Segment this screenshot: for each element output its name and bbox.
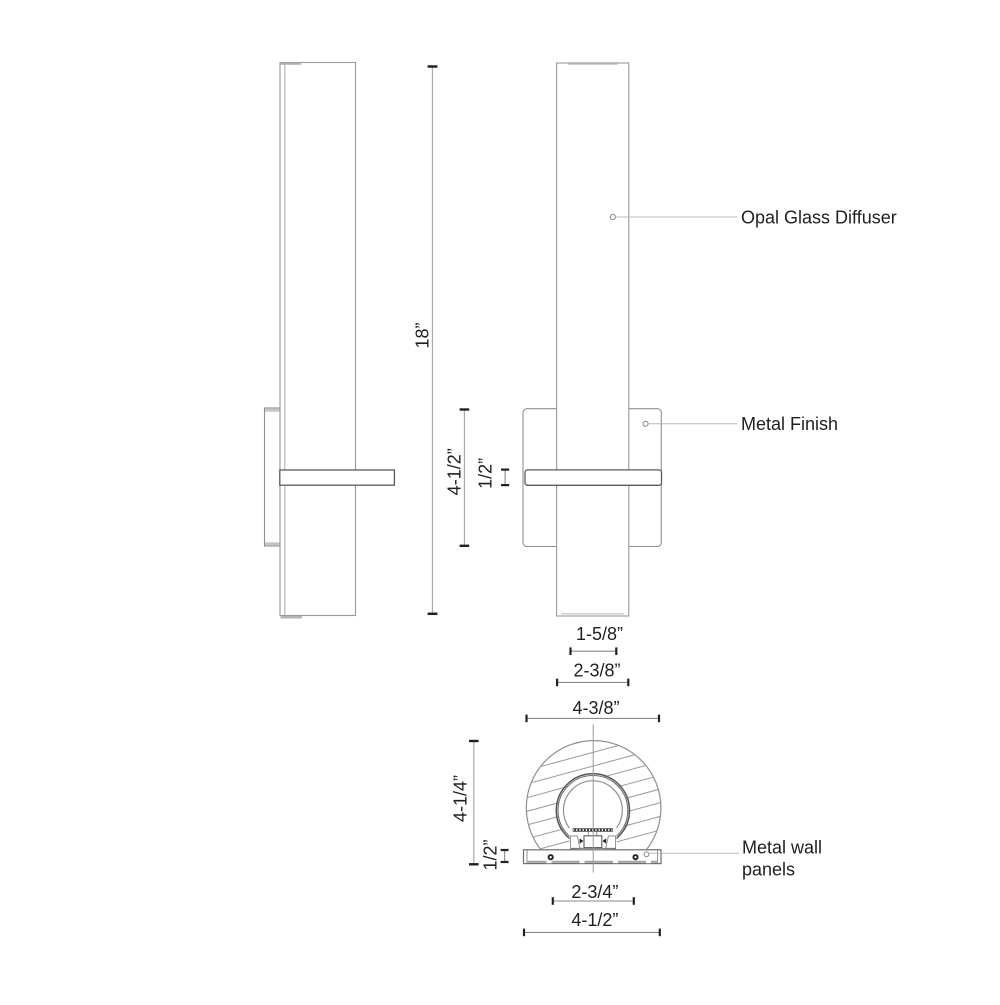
svg-text:1/2”: 1/2” [475,458,495,489]
svg-text:panels: panels [742,859,795,879]
svg-text:1/2”: 1/2” [481,839,501,870]
svg-text:4-1/4”: 4-1/4” [450,775,470,822]
svg-text:4-1/2”: 4-1/2” [571,910,618,930]
svg-text:Opal Glass Diffuser: Opal Glass Diffuser [741,207,897,227]
svg-text:2-3/4”: 2-3/4” [571,882,618,902]
svg-text:4-1/2”: 4-1/2” [444,448,464,495]
svg-text:Metal wall: Metal wall [742,838,822,858]
svg-text:1-5/8”: 1-5/8” [576,624,623,644]
svg-text:18”: 18” [412,322,432,348]
svg-text:Metal Finish: Metal Finish [741,414,838,434]
svg-text:2-3/8”: 2-3/8” [573,661,620,681]
svg-text:4-3/8”: 4-3/8” [572,698,619,718]
